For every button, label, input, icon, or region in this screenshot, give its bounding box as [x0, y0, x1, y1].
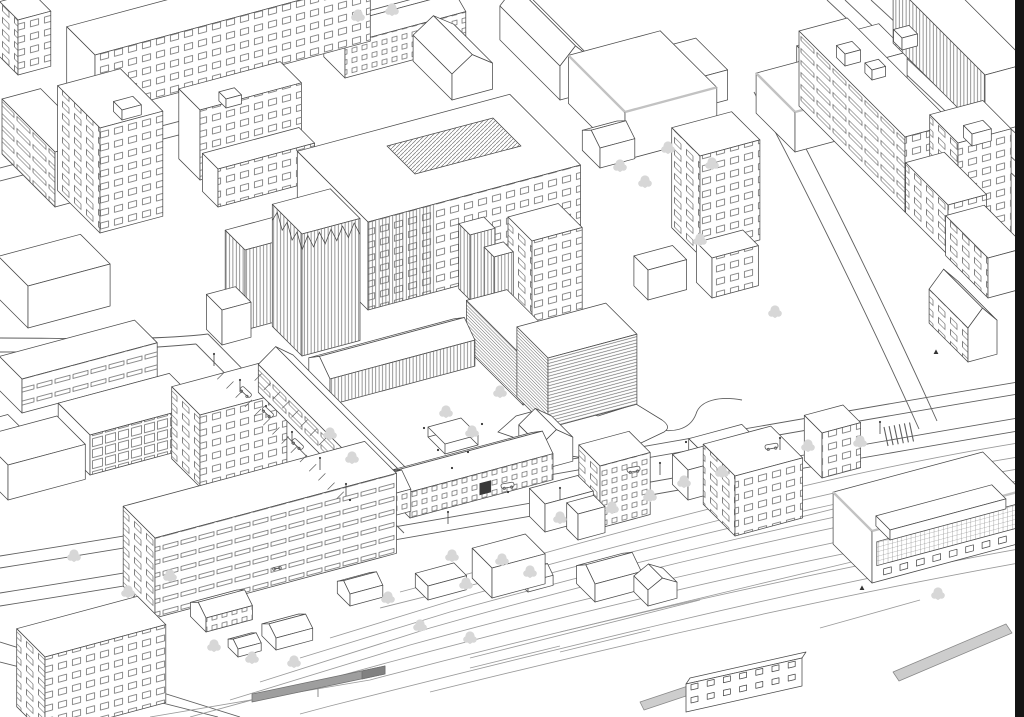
pedestrian	[467, 451, 469, 453]
tree-canopy	[526, 570, 533, 577]
lamp-head	[213, 353, 215, 355]
window	[788, 661, 795, 668]
roof-box	[964, 120, 992, 146]
tree-canopy	[496, 390, 503, 397]
window	[691, 683, 698, 690]
tree-canopy	[466, 636, 473, 643]
lamp-head	[291, 431, 293, 433]
tree-canopy	[448, 554, 455, 561]
pedestrian	[451, 467, 453, 469]
building	[804, 405, 860, 478]
tree-canopy	[856, 440, 863, 447]
tree-canopy	[608, 506, 615, 513]
pedestrian	[423, 427, 425, 429]
tree-canopy	[616, 164, 623, 171]
tree-canopy	[641, 180, 648, 187]
window	[740, 672, 747, 679]
campus-tower	[272, 189, 360, 356]
south-windows	[18, 11, 51, 75]
pedestrian	[507, 491, 509, 493]
lamp-head	[345, 483, 347, 485]
tree-canopy	[664, 146, 671, 153]
lamp-head	[659, 462, 661, 464]
pedestrian	[685, 441, 687, 443]
lamp-head	[779, 437, 781, 439]
tree-canopy	[442, 410, 449, 417]
tree-canopy	[290, 660, 297, 667]
tree-canopy	[462, 582, 469, 589]
tree-canopy	[556, 516, 563, 523]
tree-canopy	[348, 456, 355, 463]
tree-canopy	[804, 444, 811, 451]
tree-canopy	[354, 14, 361, 21]
tree-canopy	[498, 558, 505, 565]
window	[723, 689, 730, 696]
window	[723, 676, 730, 683]
tree-canopy	[646, 494, 653, 501]
tree-canopy	[416, 624, 423, 631]
window	[707, 679, 714, 686]
lamp-head	[239, 379, 241, 381]
lamp-head	[319, 457, 321, 459]
right-border-strip	[1015, 0, 1024, 717]
axonometric-city-drawing	[0, 0, 1024, 717]
tree-canopy	[384, 596, 391, 603]
window	[756, 681, 763, 688]
campus-link	[206, 287, 251, 345]
tree-canopy	[388, 8, 395, 15]
tree-canopy	[708, 162, 715, 169]
south-windows	[100, 111, 163, 233]
pedestrian	[349, 499, 351, 501]
lamp-head	[447, 511, 449, 513]
tree-canopy	[166, 574, 173, 581]
south-windows	[302, 219, 360, 357]
tree-canopy	[771, 310, 778, 317]
west-windows	[459, 224, 470, 300]
tree-canopy	[326, 432, 333, 439]
tree-canopy	[696, 238, 703, 245]
building	[567, 495, 605, 540]
building	[703, 426, 802, 536]
lamp-head	[879, 421, 881, 423]
pedestrian	[437, 449, 439, 451]
window	[756, 668, 763, 675]
pedestrian	[481, 423, 483, 425]
striped-bay	[368, 204, 436, 310]
lamp-head	[559, 487, 561, 489]
tree-canopy	[468, 430, 475, 437]
tree-canopy	[70, 554, 77, 561]
tree-canopy	[210, 644, 217, 651]
tree-canopy	[248, 656, 255, 663]
tree-canopy	[718, 470, 725, 477]
building	[0, 0, 51, 75]
window	[691, 696, 698, 703]
drawing-canvas	[0, 0, 1024, 717]
window	[707, 692, 714, 699]
south-facade	[222, 302, 251, 345]
window	[740, 685, 747, 692]
tree-canopy	[934, 592, 941, 599]
window	[788, 674, 795, 681]
tree-canopy	[124, 590, 131, 597]
tree-canopy	[680, 480, 687, 487]
building	[634, 246, 687, 301]
